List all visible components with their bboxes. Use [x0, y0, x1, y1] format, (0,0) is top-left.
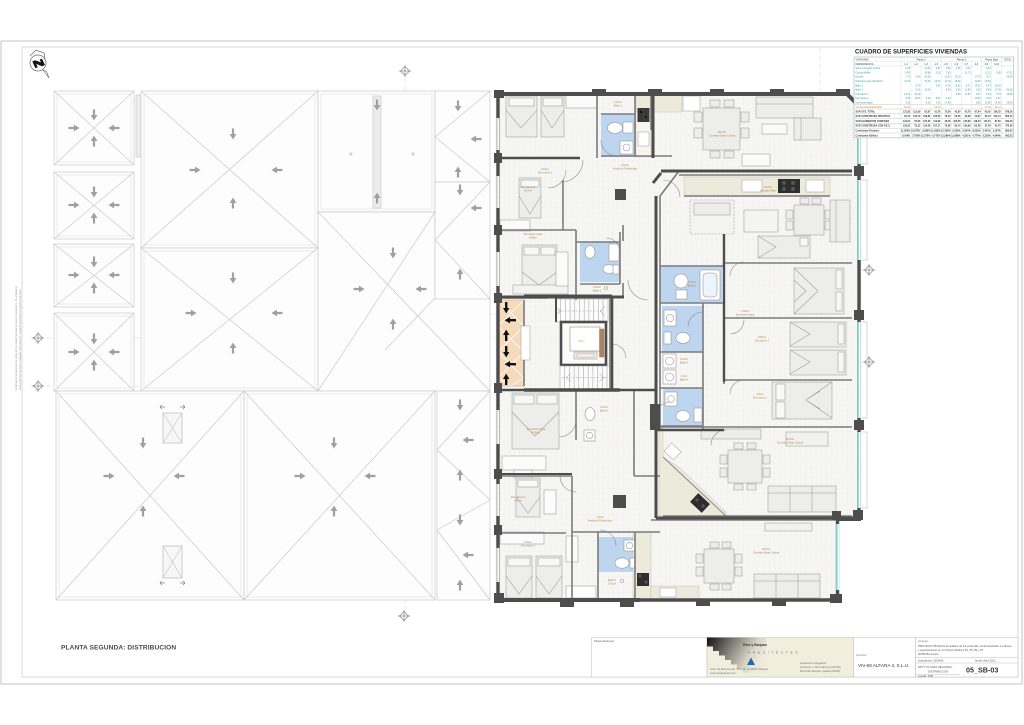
svg-text:VIV-69 ALFARA 4, S.L.U.: VIV-69 ALFARA 4, S.L.U. [858, 663, 909, 668]
svg-text:Dormitorio 1: Dormitorio 1 [856, 93, 870, 96]
svg-text:2-8: 2-8 [975, 63, 979, 66]
svg-text:48,48: 48,48 [945, 120, 952, 123]
svg-text:8,21: 8,21 [936, 97, 941, 100]
svg-text:885,45: 885,45 [1005, 130, 1013, 133]
svg-text:475,58: 475,58 [1005, 125, 1013, 128]
svg-text:Planta Baja: Planta Baja [985, 58, 998, 61]
svg-text:105m: 105m [578, 339, 585, 343]
svg-text:El presente documento es copia: El presente documento es copia de su ori… [14, 285, 18, 390]
svg-text:4,770%: 4,770% [972, 134, 981, 137]
svg-text:124,04: 124,04 [903, 120, 911, 123]
svg-text:Baño 1: Baño 1 [856, 84, 864, 87]
svg-text:138,80: 138,80 [923, 115, 931, 118]
svg-text:3,06: 3,06 [976, 89, 981, 92]
svg-text:Comedor Estar Cocina: Comedor Estar Cocina [709, 134, 736, 138]
svg-text:1-5: 1-5 [934, 63, 938, 66]
svg-text:135,50: 135,50 [933, 115, 941, 118]
svg-text:4,76: 4,76 [946, 84, 951, 87]
svg-text:8,54: 8,54 [986, 89, 991, 92]
svg-text:TOTAL: TOTAL [1004, 58, 1012, 61]
svg-text:11,72: 11,72 [965, 71, 971, 74]
svg-text:134,68: 134,68 [963, 125, 971, 128]
svg-text:10,872%: 10,872% [911, 130, 921, 133]
svg-text:Baño 2: Baño 2 [593, 289, 602, 293]
svg-text:9.91m²: 9.91m² [541, 167, 549, 171]
svg-text:2-5: 2-5 [944, 63, 948, 66]
svg-text:PLANTA SEGUNDA: DISTRIBUCION: PLANTA SEGUNDA: DISTRIBUCION [61, 645, 176, 652]
svg-text:expediente: 2020/06: expediente: 2020/06 [918, 659, 944, 663]
svg-text:62,68: 62,68 [965, 115, 972, 118]
svg-text:9,74: 9,74 [986, 84, 991, 87]
svg-text:60,44: 60,44 [985, 115, 992, 118]
svg-text:6,35: 6,35 [986, 67, 991, 70]
svg-text:16,26: 16,26 [924, 89, 931, 92]
svg-text:118,23: 118,23 [973, 120, 981, 123]
svg-text:130,98: 130,98 [963, 120, 971, 123]
svg-text:promotor:: promotor: [856, 653, 867, 657]
svg-text:5,64: 5,64 [946, 89, 951, 92]
svg-text:8,95: 8,95 [906, 71, 911, 74]
svg-text:6,50: 6,50 [956, 89, 961, 92]
svg-text:4.91m²: 4.91m² [593, 285, 601, 289]
svg-text:8.82m²: 8.82m² [758, 335, 766, 339]
svg-text:137,17: 137,17 [933, 125, 941, 128]
svg-text:2.91m²: 2.91m² [680, 357, 688, 361]
svg-text:SUP. UTIL TOTAL: SUP. UTIL TOTAL [856, 110, 876, 113]
svg-text:65,92: 65,92 [985, 110, 992, 113]
svg-text:9,23: 9,23 [916, 89, 921, 92]
svg-text:27,05: 27,05 [985, 106, 992, 109]
svg-text:Baño 1: Baño 1 [600, 409, 609, 413]
svg-text:112,48: 112,48 [973, 125, 981, 128]
svg-text:16.8m²: 16.8m² [764, 185, 772, 189]
svg-text:9,146%: 9,146% [902, 134, 911, 137]
svg-text:16,13: 16,13 [924, 80, 931, 83]
svg-text:2-6: 2-6 [954, 63, 958, 66]
svg-text:Baño 1: Baño 1 [614, 104, 623, 108]
svg-text:11,092%: 11,092% [931, 130, 941, 133]
svg-text:05_SB-03: 05_SB-03 [966, 666, 998, 675]
svg-text:106,06: 106,06 [953, 120, 961, 123]
svg-text:26,23: 26,23 [904, 106, 911, 109]
svg-text:11,088%: 11,088% [951, 134, 961, 137]
svg-text:11,953%: 11,953% [901, 130, 911, 133]
svg-text:28.5m²: 28.5m² [718, 130, 726, 134]
svg-text:9,230%: 9,230% [952, 130, 961, 133]
svg-text:9.8m²: 9.8m² [757, 392, 764, 396]
svg-text:3,608%: 3,608% [922, 130, 931, 133]
svg-text:52,70: 52,70 [995, 125, 1002, 128]
svg-text:73,25: 73,25 [914, 125, 921, 128]
svg-text:DEPENDENCIA: DEPENDENCIA [856, 63, 874, 66]
svg-text:Baño 4: Baño 4 [680, 361, 689, 365]
svg-text:3,79: 3,79 [996, 93, 1001, 96]
svg-text:87,95: 87,95 [914, 120, 921, 123]
svg-text:84,72: 84,72 [904, 115, 911, 118]
svg-text:26,05: 26,05 [1007, 93, 1014, 96]
svg-text:12,96: 12,96 [975, 80, 982, 83]
svg-text:8,035%: 8,035% [972, 130, 981, 133]
svg-text:9,80: 9,80 [916, 76, 921, 79]
svg-text:1-1: 1-1 [904, 63, 908, 66]
svg-text:4,321%: 4,321% [962, 134, 971, 137]
svg-text:SUP. ELEMENTOS COMUNES: SUP. ELEMENTOS COMUNES [856, 120, 890, 123]
svg-text:DP??: PLANTA SEGUNDA:: DP??: PLANTA SEGUNDA: [918, 665, 953, 669]
svg-text:Gran Via Marques del Turia 49,: Gran Via Marques del Turia 49, 11 46005 … [710, 667, 768, 671]
svg-text:Estudio: Estudio [856, 76, 865, 79]
svg-text:Dormitorio Agua: Dormitorio Agua [856, 102, 874, 105]
svg-text:7.92m²: 7.92m² [741, 309, 749, 313]
svg-text:878,26: 878,26 [1005, 110, 1013, 113]
svg-text:4,646%: 4,646% [993, 134, 1002, 137]
svg-text:109,25: 109,25 [993, 110, 1001, 113]
svg-text:12,51: 12,51 [965, 93, 972, 96]
svg-text:12,270%: 12,270% [921, 134, 931, 137]
svg-text:2-7: 2-7 [964, 63, 968, 66]
svg-text:Cocina Altillos: Cocina Altillos [856, 71, 872, 74]
svg-text:13,43: 13,43 [934, 80, 941, 83]
svg-text:Baño 2: Baño 2 [608, 578, 617, 582]
svg-text:59,67: 59,67 [975, 115, 982, 118]
svg-text:7.92m²: 7.92m² [596, 515, 604, 519]
svg-text:13,52: 13,52 [985, 80, 992, 83]
svg-text:Dormitorio 1: Dormitorio 1 [538, 171, 553, 175]
svg-text:fecha: Abril 2021: fecha: Abril 2021 [975, 659, 996, 663]
svg-text:6,71: 6,71 [966, 84, 971, 87]
svg-text:15,88: 15,88 [924, 71, 931, 74]
svg-text:Baño 2: Baño 2 [856, 89, 864, 92]
svg-text:5,20: 5,20 [926, 102, 931, 105]
svg-text:17,70: 17,70 [975, 76, 982, 79]
svg-text:Comedor Estar Cocina: Comedor Estar Cocina [753, 551, 780, 555]
svg-text:3,87: 3,87 [936, 67, 941, 70]
svg-text:Comedor Estar Cocina: Comedor Estar Cocina [777, 441, 804, 445]
svg-text:26,12: 26,12 [995, 106, 1002, 109]
svg-text:5,43: 5,43 [986, 93, 991, 96]
svg-text:850,15: 850,15 [1005, 115, 1013, 118]
svg-text:19.8m²: 19.8m² [762, 547, 770, 551]
svg-text:3,41: 3,41 [936, 102, 941, 105]
svg-text:42,79: 42,79 [965, 110, 972, 113]
svg-text:Vestíbulo Distribuidor: Vestíbulo Distribuidor [613, 167, 638, 171]
svg-text:proyecto:: proyecto: [918, 639, 929, 643]
svg-text:8,79: 8,79 [916, 84, 921, 87]
svg-text:Baño 5: Baño 5 [680, 378, 689, 382]
svg-text:12,783%: 12,783% [941, 130, 951, 133]
svg-text:Dormitorio 2: Dormitorio 2 [856, 97, 870, 100]
svg-text:40,62: 40,62 [1007, 89, 1014, 92]
svg-text:11,589%: 11,589% [941, 134, 951, 137]
svg-text:Dormitorio 1: Dormitorio 1 [521, 544, 536, 548]
svg-text:119,96: 119,96 [933, 120, 941, 123]
svg-text:115,01: 115,01 [984, 120, 992, 123]
svg-text:42,90: 42,90 [955, 110, 962, 113]
svg-text:Vestíbulo Distribuidor: Vestíbulo Distribuidor [588, 519, 613, 523]
svg-text:Francisco J. Rios Martinez (03: Francisco J. Rios Martinez (03.381) [800, 665, 841, 669]
svg-text:113,99: 113,99 [913, 110, 921, 113]
svg-text:Dormitorio Agua: Dormitorio Agua [736, 313, 755, 317]
svg-text:79,58: 79,58 [945, 125, 952, 128]
svg-text:133,70: 133,70 [913, 115, 921, 118]
svg-text:DISTRIBUCION: DISTRIBUCION [928, 670, 948, 674]
svg-text:9,27: 9,27 [986, 76, 991, 79]
svg-text:Estudio Altillo: Estudio Altillo [760, 189, 776, 193]
svg-text:1-2: 1-2 [914, 63, 918, 66]
svg-text:Observaciones: Observaciones [594, 639, 615, 643]
svg-text:46780 Bonrepos: 46780 Bonrepos [918, 652, 939, 656]
svg-text:4,84: 4,84 [946, 97, 951, 100]
svg-text:39,56: 39,56 [1007, 76, 1014, 79]
svg-text:Hab/otros para dormitorio: Hab/otros para dormitorio [856, 80, 884, 83]
svg-text:489,26: 489,26 [1005, 120, 1013, 123]
svg-text:4,53: 4,53 [986, 97, 991, 100]
svg-text:91,76: 91,76 [934, 110, 941, 113]
svg-text:www.riosybarjuan.com: www.riosybarjuan.com [710, 671, 736, 675]
svg-text:47,22: 47,22 [1007, 71, 1014, 74]
svg-text:13,14: 13,14 [904, 93, 911, 96]
svg-text:CUADRO DE SUPERFICIES VIVIENDA: CUADRO DE SUPERFICIES VIVIENDAS [855, 50, 967, 56]
svg-text:15,60: 15,60 [955, 80, 962, 83]
svg-text:11,04: 11,04 [925, 67, 931, 70]
svg-text:67,94: 67,94 [975, 110, 982, 113]
svg-text:A R Q U I T E C T E S: A R Q U I T E C T E S [748, 651, 798, 655]
svg-text:8.98m²: 8.98m² [529, 236, 537, 240]
svg-text:Baño 3: Baño 3 [688, 284, 697, 288]
svg-text:76,46: 76,46 [945, 115, 952, 118]
svg-text:87,80: 87,80 [995, 120, 1002, 123]
svg-text:4,05: 4,05 [956, 67, 961, 70]
svg-text:7,71: 7,71 [906, 76, 911, 79]
svg-text:3,441%: 3,441% [983, 130, 992, 133]
svg-text:13,02: 13,02 [904, 80, 911, 83]
svg-text:9.91m²: 9.91m² [621, 163, 629, 167]
svg-text:4.91m²: 4.91m² [614, 100, 622, 104]
svg-text:2.9m²: 2.9m² [681, 374, 688, 378]
svg-text:75,56: 75,56 [945, 110, 952, 113]
svg-text:6,97: 6,97 [996, 97, 1001, 100]
svg-text:121,83: 121,83 [903, 110, 911, 113]
svg-text:28,92: 28,92 [1007, 102, 1014, 105]
svg-text:57,00: 57,00 [985, 125, 992, 128]
svg-text:5,223%: 5,223% [983, 134, 992, 137]
svg-text:9.97m²: 9.97m² [524, 189, 532, 193]
svg-text:14,92: 14,92 [924, 76, 931, 79]
svg-text:4.91m²: 4.91m² [600, 405, 608, 409]
svg-text:17,68: 17,68 [945, 102, 952, 105]
svg-text:Coeficiente Edificio: Coeficiente Edificio [856, 134, 879, 137]
svg-text:7,792%: 7,792% [912, 134, 921, 137]
svg-text:5,23: 5,23 [926, 97, 931, 100]
svg-text:VIVIENDAS: VIVIENDAS [856, 58, 870, 61]
svg-text:1-3: 1-3 [924, 63, 928, 66]
svg-text:9.91m²: 9.91m² [524, 540, 532, 544]
svg-text:14,52: 14,52 [955, 84, 962, 87]
svg-text:14,58: 14,58 [985, 102, 992, 105]
svg-text:11,22: 11,22 [985, 71, 991, 74]
svg-text:Dormitorio Agua: Dormitorio Agua [527, 427, 546, 431]
svg-text:3.91m²: 3.91m² [688, 280, 696, 284]
svg-text:693,22: 693,22 [1005, 134, 1013, 137]
svg-text:19.8m²: 19.8m² [786, 437, 794, 441]
svg-text:10,26: 10,26 [975, 97, 982, 100]
svg-text:80,14: 80,14 [955, 125, 962, 128]
svg-text:6,772%: 6,772% [932, 134, 941, 137]
svg-text:11,84: 11,84 [965, 89, 971, 92]
svg-text:Mercedes Barjuan Capella (0949: Mercedes Barjuan Capella (09495) [800, 669, 840, 673]
svg-text:29,70: 29,70 [934, 106, 941, 109]
svg-text:total o parcial, asi como cual: total o parcial, asi como cualquier repr… [18, 289, 22, 390]
svg-text:Dormitorio Agua: Dormitorio Agua [524, 232, 543, 236]
svg-text:9,93: 9,93 [936, 84, 941, 87]
svg-text:SUP. CONSTRUIDA CON P.E.C.: SUP. CONSTRUIDA CON P.E.C. [856, 125, 891, 128]
svg-text:3-9: 3-9 [985, 63, 989, 66]
svg-text:16,07: 16,07 [975, 84, 982, 87]
svg-text:16,25: 16,25 [995, 84, 1002, 87]
svg-text:3,35: 3,35 [906, 102, 911, 105]
svg-text:7,63: 7,63 [946, 71, 951, 74]
svg-text:Dormitorio 1: Dormitorio 1 [753, 396, 768, 400]
svg-text:102,41: 102,41 [993, 115, 1001, 118]
svg-text:17,30: 17,30 [995, 89, 1002, 92]
svg-text:4,01: 4,01 [976, 93, 981, 96]
svg-text:8,98: 8,98 [956, 93, 961, 96]
svg-text:14,69: 14,69 [995, 102, 1002, 105]
svg-text:120,08: 120,08 [923, 125, 931, 128]
svg-text:3-10: 3-10 [994, 63, 1000, 66]
svg-text:62,67: 62,67 [924, 110, 931, 113]
svg-text:Planta 1: Planta 1 [917, 58, 927, 61]
svg-text:SUP. CONSTRUIDA PRIVATIVA: SUP. CONSTRUIDA PRIVATIVA [856, 115, 891, 118]
svg-text:Dormitorio 2: Dormitorio 2 [511, 495, 526, 499]
svg-text:16,13: 16,13 [955, 76, 962, 79]
svg-text:9,37: 9,37 [966, 67, 971, 70]
svg-text:Coeficiente Privativo: Coeficiente Privativo [856, 130, 880, 133]
svg-text:3,56: 3,56 [946, 67, 951, 70]
svg-text:escala: 1/50: escala: 1/50 [918, 674, 934, 678]
svg-text:arquitectos colegiados:: arquitectos colegiados: [800, 661, 827, 665]
svg-text:Terraza descubierta 50%: Terraza descubierta 50% [856, 106, 883, 109]
svg-text:5,16: 5,16 [936, 71, 941, 74]
svg-text:16,49: 16,49 [914, 93, 921, 96]
svg-text:Rios y Barjuan: Rios y Barjuan [743, 643, 767, 647]
svg-text:8,50: 8,50 [976, 102, 981, 105]
svg-text:105,30: 105,30 [923, 120, 931, 123]
svg-text:5,26: 5,26 [906, 67, 911, 70]
svg-text:118,91: 118,91 [903, 125, 911, 128]
svg-text:3,89: 3,89 [996, 71, 1001, 74]
svg-text:Dormitorio 2: Dormitorio 2 [521, 185, 536, 189]
svg-text:Dormitorio 2: Dormitorio 2 [755, 339, 770, 343]
svg-text:8,45: 8,45 [906, 97, 911, 100]
svg-text:2,157%: 2,157% [993, 130, 1002, 133]
svg-text:11,62: 11,62 [945, 76, 951, 79]
svg-text:8.98m²: 8.98m² [532, 431, 540, 435]
svg-text:Planta 2: Planta 2 [957, 58, 967, 61]
svg-text:16,11: 16,11 [914, 97, 920, 100]
svg-text:62,05: 62,05 [955, 115, 962, 118]
svg-text:5,854%: 5,854% [962, 130, 971, 133]
svg-text:Salon Comedor Cocina: Salon Comedor Cocina [856, 67, 881, 70]
svg-text:11,70: 11,70 [945, 80, 951, 83]
svg-text:9.97m²: 9.97m² [514, 499, 522, 503]
svg-text:3.91m²: 3.91m² [608, 582, 616, 586]
